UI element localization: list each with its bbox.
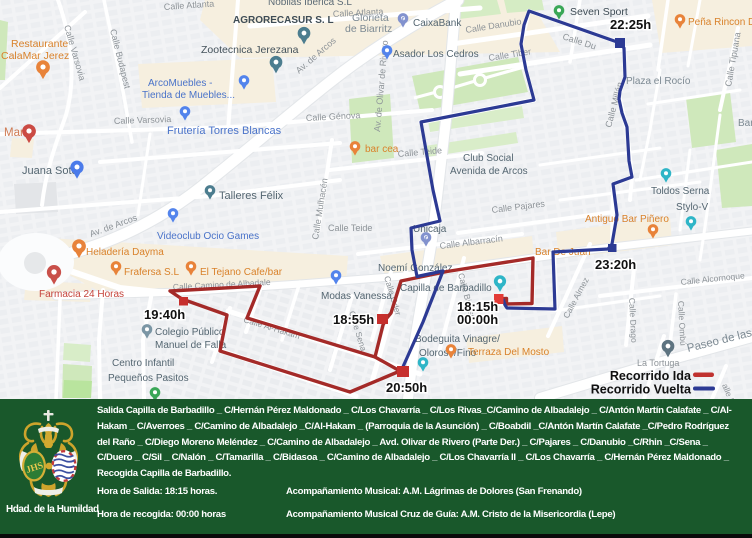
svg-text:Recorrido Ida: Recorrido Ida	[610, 369, 692, 383]
svg-text:Modas Vanessa: Modas Vanessa	[321, 291, 392, 302]
svg-text:Asador Los Cedros: Asador Los Cedros	[393, 49, 479, 60]
svg-text:Pequeños Pasitos: Pequeños Pasitos	[108, 373, 189, 384]
svg-text:22:25h: 22:25h	[610, 17, 651, 32]
svg-text:Frutería Torres Blancas: Frutería Torres Blancas	[167, 125, 282, 137]
svg-text:Capilla de Barbadillo: Capilla de Barbadillo	[400, 283, 492, 294]
svg-text:Farmacia 24 Horas: Farmacia 24 Horas	[39, 289, 124, 300]
svg-text:Calle Varsovia: Calle Varsovia	[114, 114, 172, 126]
svg-text:Frafersa S.L: Frafersa S.L	[124, 267, 179, 278]
svg-text:Peña Rincon D: Peña Rincon D	[688, 17, 752, 28]
svg-text:Avenida de Arcos: Avenida de Arcos	[450, 166, 528, 177]
svg-text:18:55h: 18:55h	[333, 312, 374, 327]
svg-text:20:50h: 20:50h	[386, 380, 427, 395]
svg-text:Talleres Félix: Talleres Félix	[219, 190, 284, 202]
svg-text:de Biarritz: de Biarritz	[345, 23, 392, 35]
svg-text:ArcoMuebles -: ArcoMuebles -	[148, 78, 212, 89]
svg-text:Recorrido Vuelta: Recorrido Vuelta	[591, 383, 692, 397]
svg-text:Videoclub Ocio Games: Videoclub Ocio Games	[157, 231, 259, 242]
svg-text:23:20h: 23:20h	[595, 257, 636, 272]
svg-text:Antiguo Bar Piñero: Antiguo Bar Piñero	[585, 214, 669, 225]
svg-text:Club Social: Club Social	[463, 153, 514, 164]
svg-text:Terraza Del Mosto: Terraza Del Mosto	[468, 347, 550, 358]
svg-text:CalaMar Jerez: CalaMar Jerez	[1, 50, 69, 62]
svg-text:00:00h: 00:00h	[457, 312, 498, 327]
svg-text:Juana Soto: Juana Soto	[22, 165, 78, 177]
svg-text:Manuel de Falla: Manuel de Falla	[155, 340, 227, 351]
svg-text:Plaza el Rocío: Plaza el Rocío	[626, 76, 691, 87]
svg-text:Bar: Bar	[738, 118, 752, 129]
svg-text:El Tejano Cafe/bar: El Tejano Cafe/bar	[200, 267, 283, 278]
svg-text:19:40h: 19:40h	[144, 307, 185, 322]
svg-text:Restaurante: Restaurante	[11, 38, 68, 50]
svg-text:Heladería Dayma: Heladería Dayma	[86, 247, 164, 258]
svg-text:La Tortuga: La Tortuga	[637, 358, 679, 368]
svg-text:Centro Infantil: Centro Infantil	[112, 358, 174, 369]
svg-text:Mar: Mar	[4, 127, 24, 139]
svg-text:AGRORECASUR S. L: AGRORECASUR S. L	[233, 15, 334, 26]
svg-text:Tienda de Muebles...: Tienda de Muebles...	[142, 90, 235, 101]
svg-text:Zootecnica Jerezana: Zootecnica Jerezana	[201, 44, 299, 56]
svg-text:bar cea: bar cea	[365, 144, 399, 155]
svg-text:Stylo-V: Stylo-V	[676, 202, 709, 213]
svg-text:CaixaBank: CaixaBank	[413, 18, 462, 29]
svg-text:Toldos Serna: Toldos Serna	[651, 186, 710, 197]
svg-text:Colegio Público: Colegio Público	[155, 327, 225, 338]
svg-text:Bodeguita Vinagre/: Bodeguita Vinagre/	[415, 334, 500, 345]
svg-text:Calle Teide: Calle Teide	[328, 223, 372, 233]
svg-text:Nobilas Ibérica S.L: Nobilas Ibérica S.L	[268, 0, 352, 8]
